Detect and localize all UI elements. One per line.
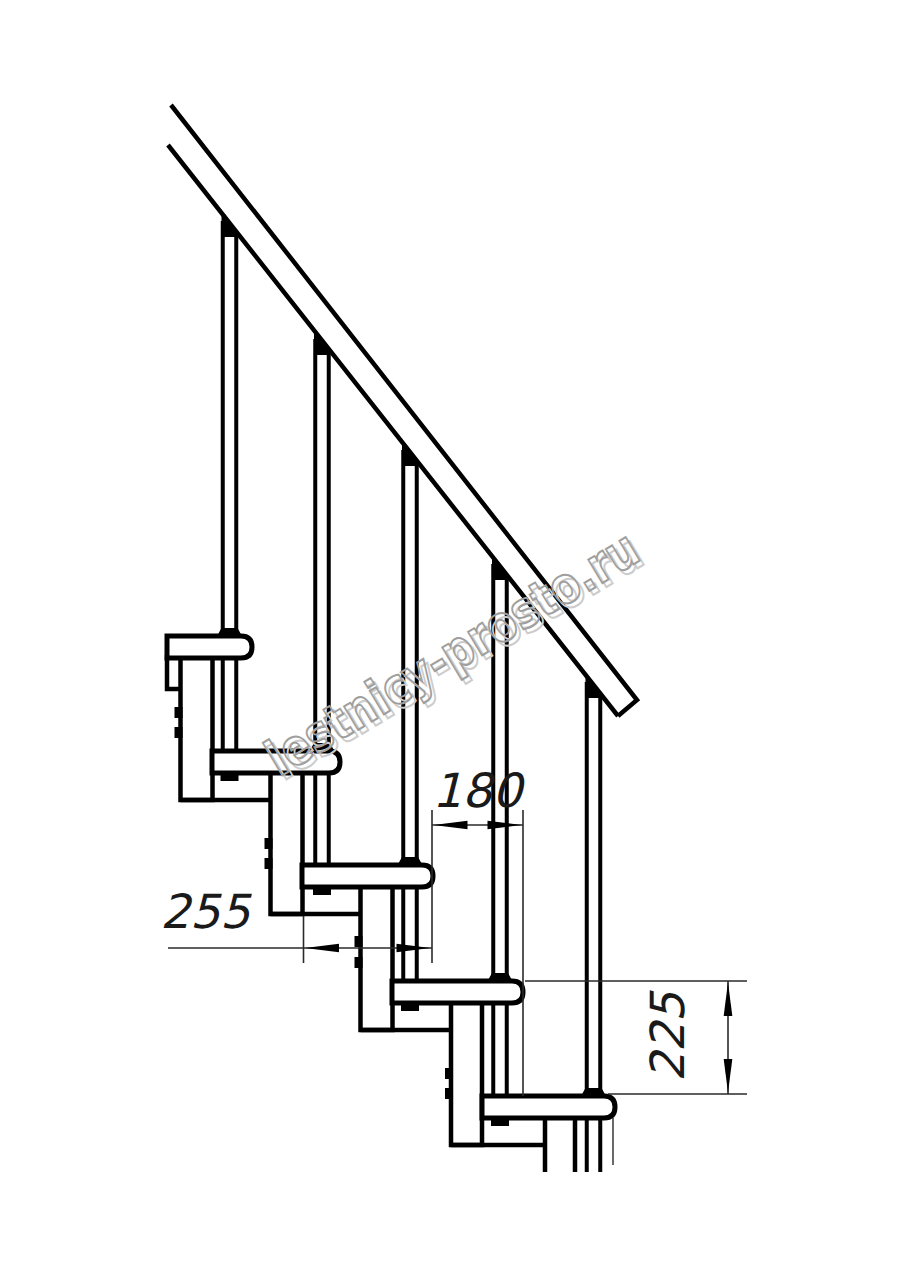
- rod-1: [223, 655, 237, 752]
- bolt: [175, 707, 183, 718]
- tread-connector-3: [397, 857, 423, 866]
- dimension-225: 225: [525, 981, 747, 1094]
- module-box-1: [181, 657, 213, 800]
- tread-connector-4: [487, 973, 513, 982]
- arrow-left-icon: [305, 944, 339, 953]
- rod-4: [493, 1000, 507, 1097]
- rod-nut-1: [221, 772, 239, 781]
- tread-1: [167, 636, 252, 658]
- arrow-right-icon: [488, 821, 522, 830]
- staircase-drawing: 255 180 225 lestnicy-prosto.ru lestnicy-…: [0, 0, 914, 1280]
- arrow-left-icon: [434, 821, 468, 830]
- bolt: [445, 1088, 453, 1099]
- bolt: [265, 838, 273, 849]
- tread-3: [302, 865, 433, 887]
- arrow-right-icon: [397, 944, 431, 953]
- dim-255-label: 255: [160, 884, 252, 939]
- bolt: [175, 727, 183, 738]
- baluster-1: [223, 221, 237, 637]
- tread-4: [392, 981, 523, 1003]
- tread-5: [482, 1096, 615, 1118]
- tread-connector-5: [581, 1088, 607, 1097]
- baluster-2: [315, 339, 329, 752]
- rod-3: [403, 884, 417, 982]
- module-box-5: [545, 1115, 575, 1172]
- baluster-5: [587, 682, 601, 1097]
- rod-5: [587, 1115, 601, 1172]
- bolt: [445, 1068, 453, 1079]
- dim-180-label: 180: [432, 763, 526, 818]
- rod-nut-3: [401, 1002, 419, 1011]
- module-box-2: [271, 772, 303, 914]
- module-box-3: [361, 886, 393, 1030]
- module-box-4: [451, 1002, 482, 1145]
- bolt: [355, 936, 363, 947]
- bolt: [355, 957, 363, 968]
- rod-nut-2: [313, 886, 331, 895]
- bolt: [265, 858, 273, 869]
- dim-225-label: 225: [640, 990, 695, 1082]
- rod-nut-4: [491, 1117, 509, 1126]
- rod-2: [315, 770, 329, 866]
- tread-connector-1: [217, 628, 243, 637]
- arrow-down-icon: [724, 1059, 733, 1093]
- arrow-up-icon: [724, 982, 733, 1016]
- drawing-canvas: 255 180 225 lestnicy-prosto.ru lestnicy-…: [0, 0, 914, 1280]
